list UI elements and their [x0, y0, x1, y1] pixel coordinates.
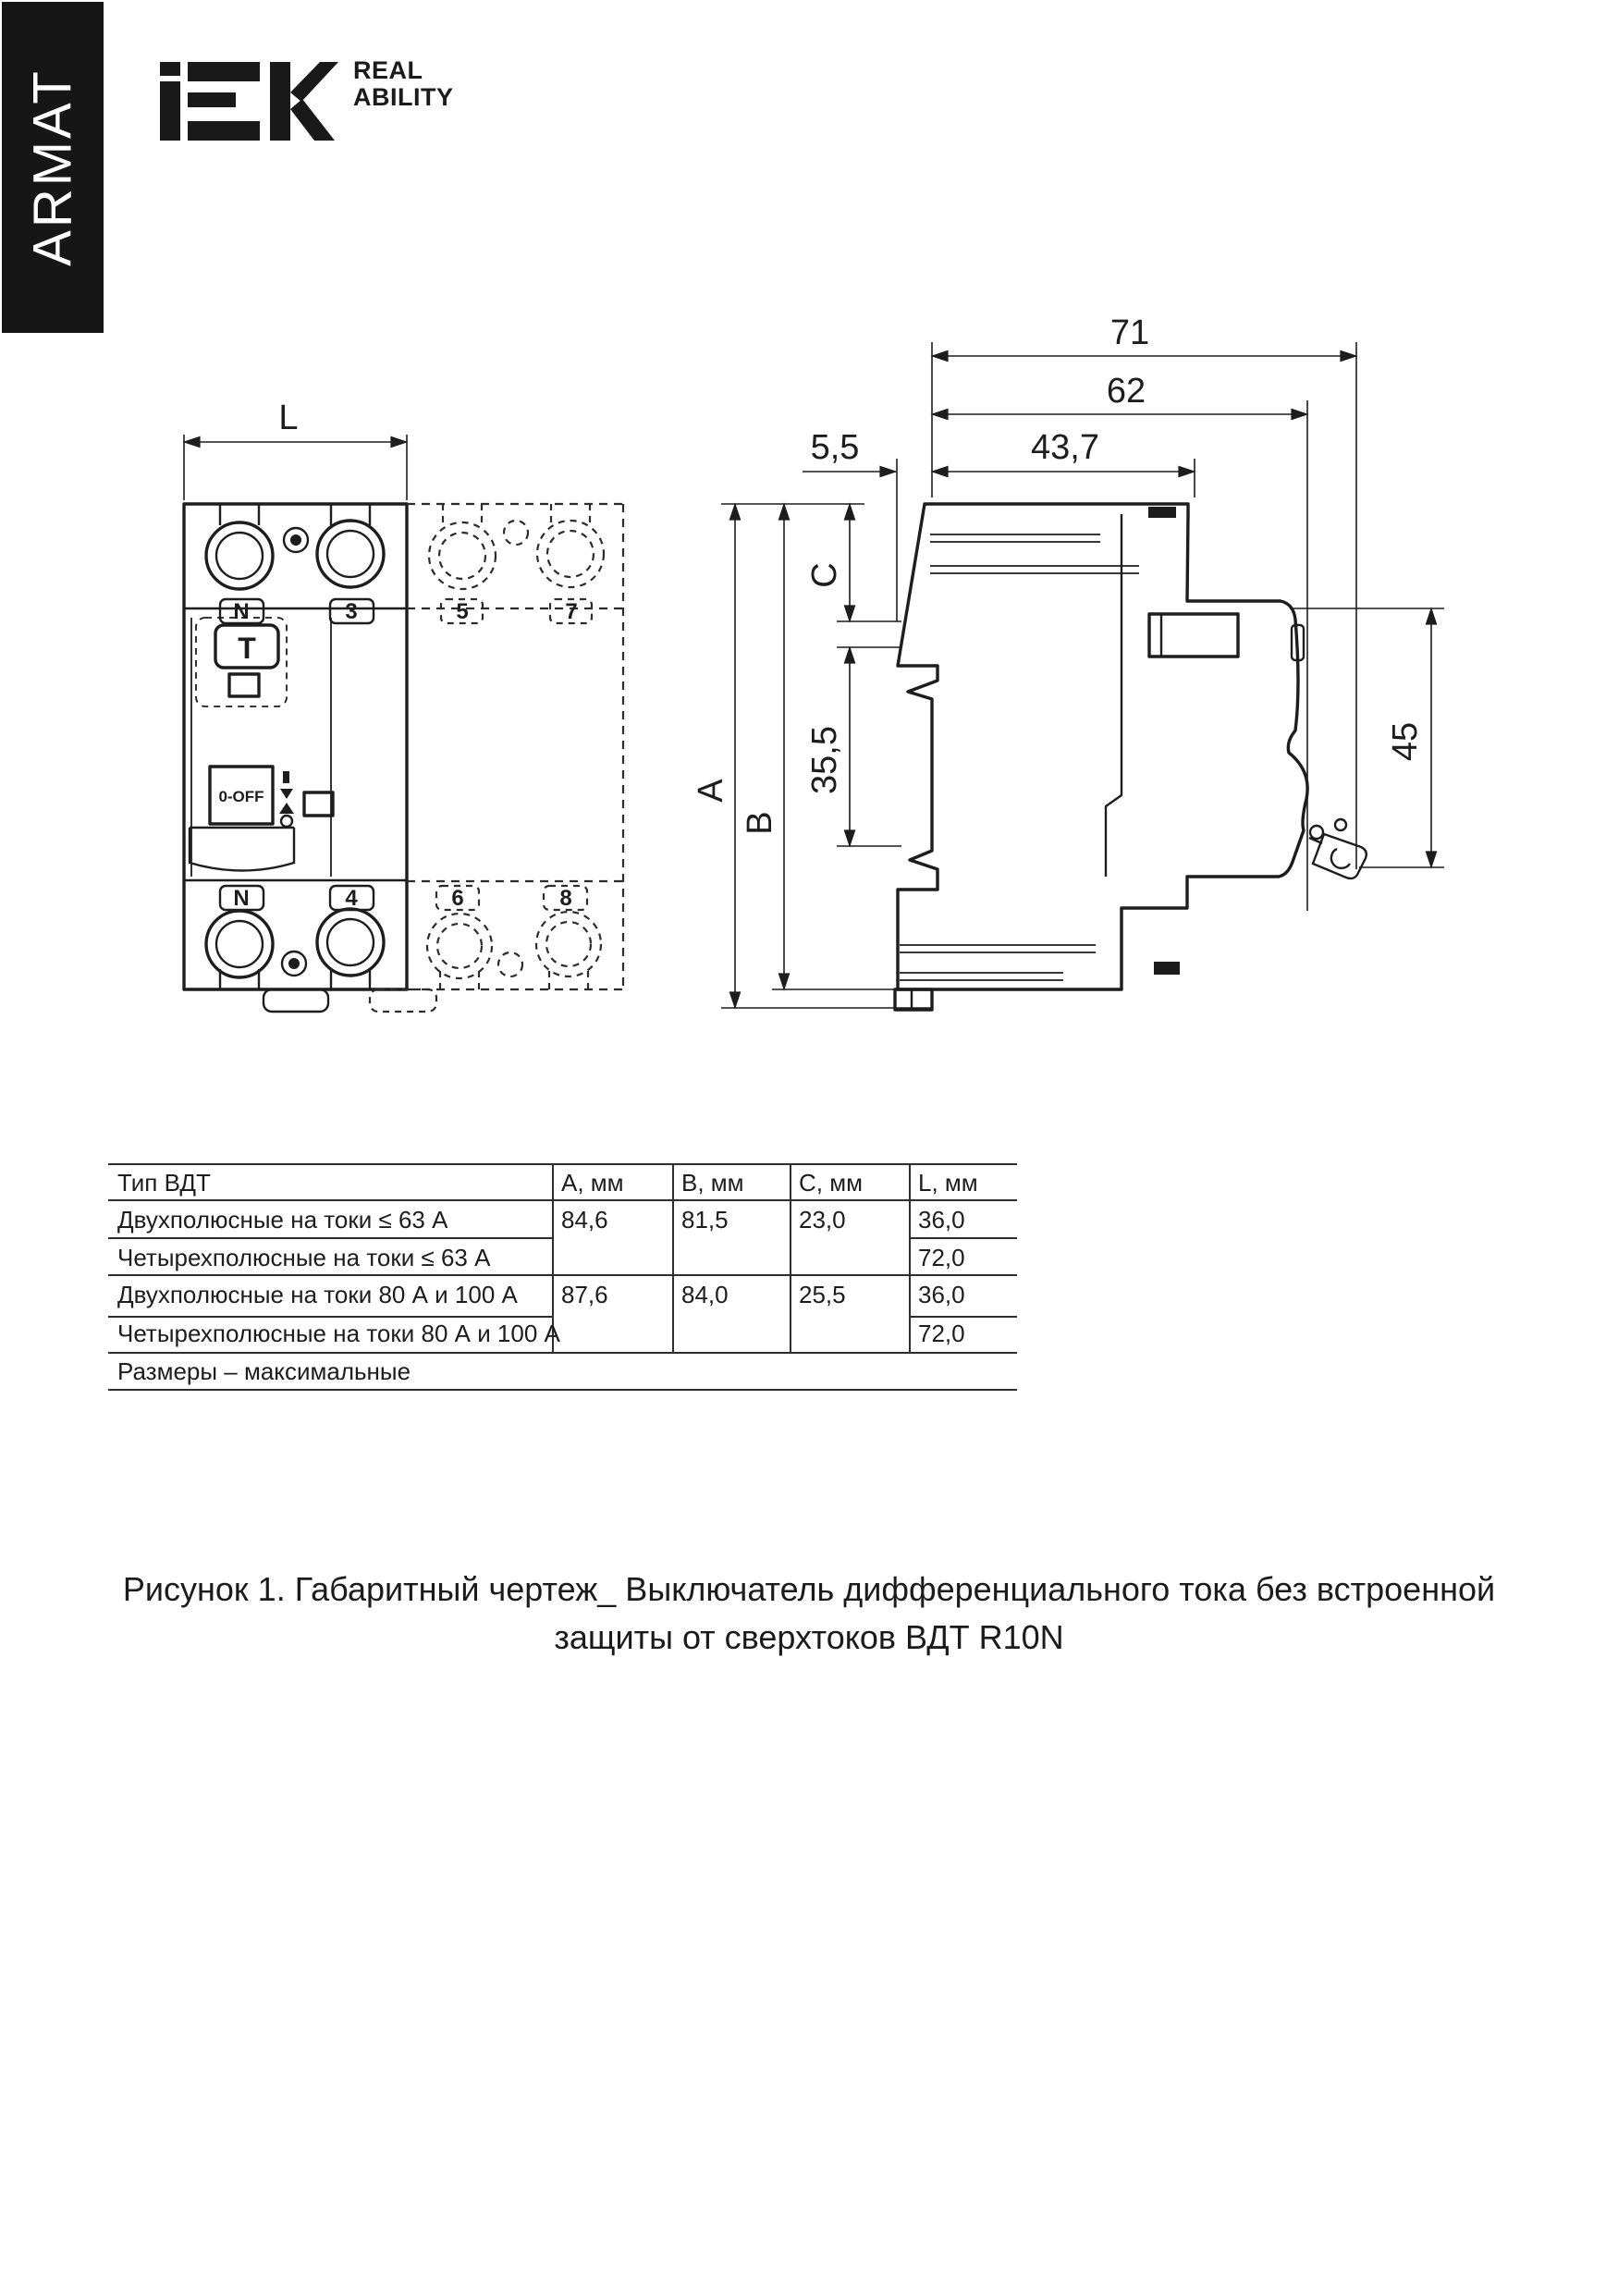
table-cell-l: 36,0	[918, 1206, 965, 1234]
dim-45-label: 45	[1386, 722, 1425, 761]
dim-c-label: C	[805, 562, 844, 587]
bottom-foot	[895, 989, 932, 1010]
armat-banner: ARMAT	[2, 2, 104, 333]
table-header-l: L, мм	[918, 1169, 978, 1197]
table-cell-l: 36,0	[918, 1281, 965, 1309]
terminal-label-7: 7	[565, 599, 577, 624]
figure-caption-line2: защиты от сверхтоков ВДТ R10N	[92, 1614, 1526, 1662]
side-profile-outline	[898, 504, 1307, 989]
table-cell-b: 81,5	[681, 1206, 729, 1234]
table-header-type: Тип ВДТ	[117, 1169, 211, 1197]
mounting-tab	[264, 989, 328, 1012]
tagline-real: REAL	[353, 57, 454, 84]
table-cell-c: 25,5	[799, 1281, 846, 1309]
table-header-c: C, мм	[799, 1169, 863, 1197]
dim-a-label: A	[692, 779, 730, 803]
table-row-type: Двухполюсные на токи ≤ 63 А	[117, 1206, 447, 1234]
table-cell-b: 84,0	[681, 1281, 729, 1309]
dim-62-label: 62	[1107, 372, 1146, 411]
dimensions-table: Тип ВДТ A, мм B, мм C, мм L, мм Двухполю…	[108, 1163, 1017, 1391]
table-row-type: Четырехполюсные на токи 80 А и 100 А	[117, 1320, 560, 1348]
table-cell-c: 23,0	[799, 1206, 846, 1234]
iek-logo-icon	[157, 57, 342, 145]
front-view: L N 3	[184, 399, 623, 1012]
figure-caption: Рисунок 1. Габаритный чертеж_ Выключател…	[92, 1565, 1526, 1662]
terminal-label-n-top: N	[233, 599, 249, 624]
dim-b-label: B	[741, 811, 779, 834]
terminals-bottom: N 4	[206, 886, 384, 1012]
front-terminal-box	[1149, 614, 1238, 657]
terminals-top: N 3	[206, 504, 384, 624]
terminal-label-6: 6	[451, 886, 463, 911]
table-cell-a: 84,6	[561, 1206, 608, 1234]
table-cell-l: 72,0	[918, 1320, 965, 1348]
switch-indicator-icon	[279, 771, 294, 827]
din-latch-bottom	[1154, 962, 1180, 975]
handle-recess	[190, 828, 294, 871]
table-header-a: A, мм	[561, 1169, 624, 1197]
switch-label: 0-OFF	[218, 788, 264, 805]
table-footnote: Размеры – максимальные	[117, 1357, 411, 1386]
seal-lock-detail	[1309, 819, 1367, 878]
cover-seam	[1106, 514, 1122, 877]
dim-43-7-label: 43,7	[1031, 428, 1099, 467]
controls: T 0-OFF	[190, 618, 333, 877]
terminal-label-5: 5	[456, 599, 468, 624]
dim-71-label: 71	[1110, 313, 1149, 352]
dim-5-5-label: 5,5	[811, 428, 860, 467]
table-row-type: Двухполюсные на токи 80 А и 100 А	[117, 1281, 518, 1309]
armat-banner-label: ARMAT	[22, 68, 84, 266]
datasheet-page: ARMAT REAL ABILITY	[0, 0, 1618, 2296]
dim-l-label: L	[278, 399, 298, 437]
table-cell-l: 72,0	[918, 1244, 965, 1272]
dim-35-5-label: 35,5	[805, 726, 844, 794]
iek-logo-glyphs	[160, 62, 338, 141]
terminal-label-4: 4	[345, 886, 358, 911]
tagline-ability: ABILITY	[353, 84, 454, 111]
din-latch-top	[1148, 507, 1176, 518]
side-view: 71 62 5,5 43,7 A B C 35,5	[692, 313, 1444, 1010]
terminal-label-n-bottom: N	[233, 886, 249, 911]
figure-caption-line1: Рисунок 1. Габаритный чертеж_ Выключател…	[92, 1565, 1526, 1614]
terminal-label-3: 3	[345, 599, 357, 624]
table-header-b: B, мм	[681, 1169, 744, 1197]
table-row-type: Четырехполюсные на токи ≤ 63 А	[117, 1244, 490, 1272]
dimensional-drawing: L N 3	[0, 305, 1618, 1045]
table-cell-a: 87,6	[561, 1281, 608, 1309]
brand-tagline: REAL ABILITY	[353, 57, 454, 111]
terminal-label-8: 8	[559, 886, 571, 911]
test-button-label: T	[238, 632, 256, 665]
